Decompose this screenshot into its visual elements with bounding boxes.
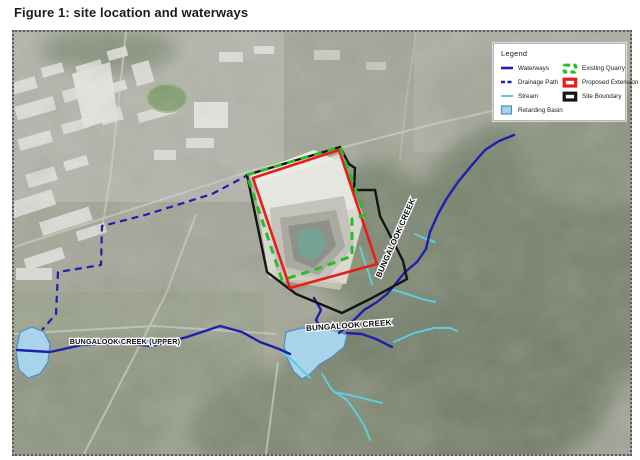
stream-line-swatch (500, 92, 514, 100)
legend-item-waterways: Waterways (500, 63, 558, 73)
legend: Legend Waterways Drainage Path (493, 43, 626, 121)
proposed-extension-swatch (562, 77, 578, 88)
label-bungalook-creek-upper: BUNGALOOK CREEK (UPPER) (70, 337, 181, 346)
drainage-path-line-swatch (500, 78, 514, 86)
legend-item-stream: Stream (500, 91, 558, 101)
legend-item-proposed-extension: Proposed Extension (562, 77, 626, 87)
figure-title: Figure 1: site location and waterways (14, 5, 248, 20)
existing-quarry-swatch (562, 63, 578, 74)
report-page: Figure 1: site location and waterways (0, 0, 640, 460)
legend-title: Legend (501, 49, 619, 58)
legend-item-site-boundary: Site Boundary (562, 91, 626, 101)
map-figure: BUNGALOOK CREEK (UPPER) BUNGALOOK CREEK … (12, 30, 632, 456)
site-boundary-swatch (562, 91, 578, 102)
legend-item-drainage-path: Drainage Path (500, 77, 558, 87)
retarding-basin-swatch (500, 105, 514, 115)
legend-item-retarding-basin: Retarding Basin (500, 105, 558, 115)
legend-item-existing-quarry: Existing Quarry (562, 63, 626, 73)
waterways-line-swatch (500, 64, 514, 72)
